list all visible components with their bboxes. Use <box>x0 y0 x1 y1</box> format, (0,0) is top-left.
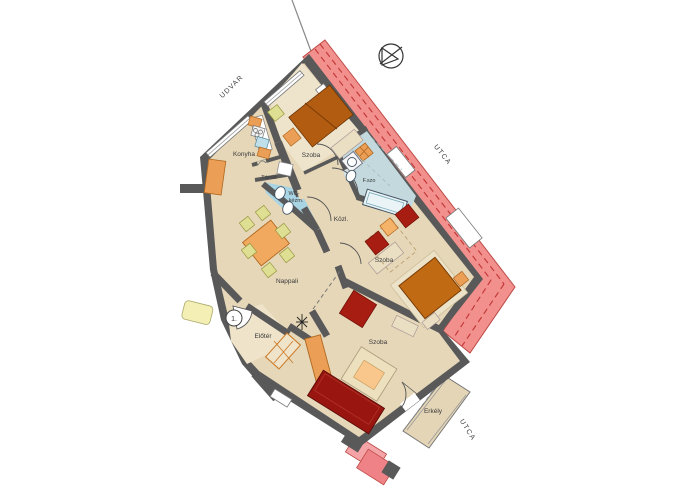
svg-text:Erkély: Erkély <box>424 408 443 415</box>
svg-text:F.szo: F.szo <box>363 178 376 184</box>
svg-text:Konyha: Konyha <box>233 151 255 158</box>
svg-text:Szoba: Szoba <box>302 152 321 159</box>
svg-text:Tároló: Tároló <box>261 175 277 181</box>
svg-text:Előtér: Előtér <box>255 333 273 340</box>
svg-text:kézm.: kézm. <box>289 198 304 204</box>
svg-text:Közl.: Közl. <box>334 216 349 223</box>
svg-text:Szoba: Szoba <box>375 257 394 264</box>
svg-text:Nappali: Nappali <box>276 278 298 285</box>
svg-text:1.: 1. <box>231 316 237 323</box>
svg-text:Szoba: Szoba <box>369 339 388 346</box>
svg-text:WC-: WC- <box>289 191 300 197</box>
